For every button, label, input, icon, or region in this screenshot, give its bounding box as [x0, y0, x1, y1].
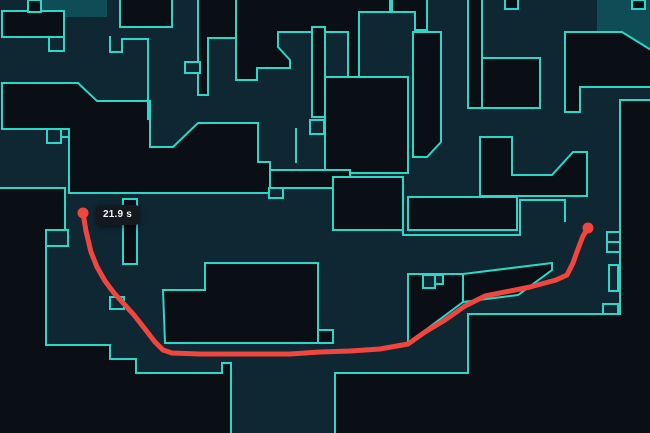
prop-box: [310, 120, 324, 134]
wall-region: [28, 0, 41, 12]
wall-region: [482, 58, 540, 108]
wall-region: [2, 11, 64, 37]
route-start-point[interactable]: [78, 208, 89, 219]
wall-region: [468, 0, 482, 108]
prop-box: [607, 232, 620, 242]
wall-region: [312, 27, 325, 117]
prop-box: [435, 275, 443, 284]
wall-region: [408, 197, 517, 230]
wall-region: [325, 77, 408, 173]
wall-region: [120, 0, 172, 27]
wall-region: [333, 177, 403, 230]
wall-region: [318, 330, 333, 343]
prop-box: [607, 242, 620, 252]
prop-box: [61, 129, 69, 137]
prop-box: [423, 275, 435, 288]
prop-box: [269, 188, 283, 198]
tactical-map: [0, 0, 650, 433]
prop-box: [603, 304, 618, 314]
prop-box: [49, 37, 64, 51]
wall-region: [632, 0, 645, 9]
prop-box: [47, 129, 61, 143]
route-end-point[interactable]: [583, 223, 594, 234]
prop-box: [609, 265, 618, 291]
prop-box: [46, 230, 68, 246]
wall-region: [505, 0, 518, 9]
wall-region: [413, 32, 441, 157]
wall-region: [123, 199, 137, 264]
map-viewport[interactable]: 21.9 s: [0, 0, 650, 433]
prop-box: [185, 62, 200, 73]
